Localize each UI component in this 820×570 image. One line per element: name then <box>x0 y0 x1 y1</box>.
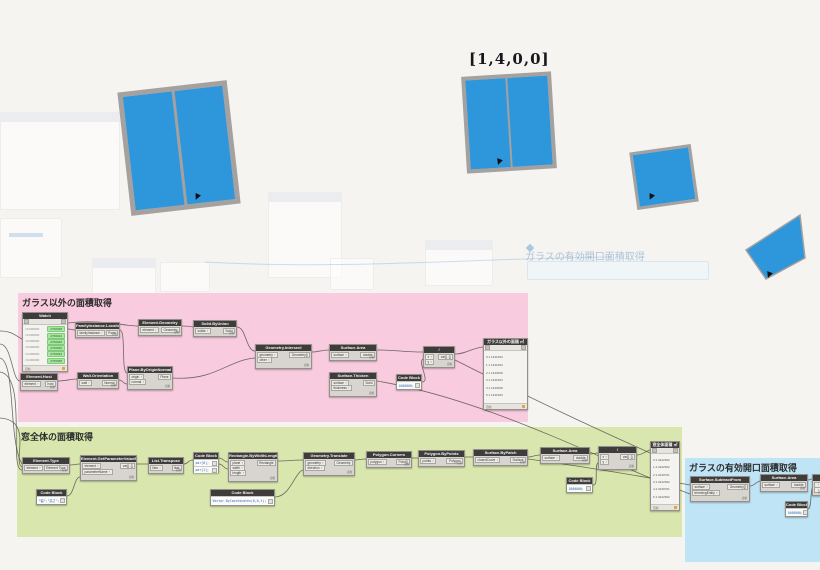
watch-item-label: =0.000000 <box>25 346 39 349</box>
code-line[interactable]: 1000000; <box>567 484 592 492</box>
watch-list-item: 3 4.3222392 <box>653 481 677 484</box>
lacing-label: 自動 <box>419 462 464 466</box>
lacing-label: 自動 <box>229 477 277 481</box>
lacing-label: 自動 <box>541 459 589 463</box>
node-code-block-params[interactable]: Code Block"幅";"高さ"; <box>36 489 67 505</box>
watch-list-item: =0.0000002766042 <box>25 333 65 339</box>
watch-list-item: 4 4.3230761 <box>653 488 677 491</box>
port-row: thickness <box>330 386 376 392</box>
watch-toolbar-button[interactable] <box>521 345 526 350</box>
node-geometry-translate[interactable]: Geometry.TranslategeometryGeometrydirect… <box>303 452 355 476</box>
port-row: trimmingEntity <box>691 490 749 496</box>
code-block-body[interactable]: Vector.ByCoordinates(0,0,t); <box>211 496 274 505</box>
watch-toolbar-button[interactable] <box>485 345 490 350</box>
node-list-transpose[interactable]: List.Transposelistslists自動 <box>148 457 184 474</box>
node-element-getparametervaluebyname[interactable]: Element.GetParameterValueByNameelementva… <box>80 455 137 481</box>
code-block-body[interactable]: par[0];par[1]; <box>194 459 218 472</box>
code-block-body[interactable]: 1000000; <box>786 508 807 516</box>
watch-list: =0.0000002766038=0.0000002766042=0.00000… <box>23 325 67 365</box>
watch-toolbar-button[interactable] <box>673 448 678 453</box>
node-element-geometry[interactable]: Element.GeometryelementGeometry自動 <box>138 319 182 336</box>
watch-list-item: 5 4.3222392 <box>653 496 677 499</box>
watch-list-item: 5 1.1331963 <box>486 394 525 397</box>
watch-list-item: 3 1.1331963 <box>486 379 525 382</box>
lacing-label: 自動 <box>367 463 411 467</box>
watch-list-item: =0.0000002766050 <box>25 345 65 351</box>
lacing-label: 自動 <box>128 385 172 389</box>
lacing-label: 自動 <box>330 392 376 396</box>
lacing-label: 自動 <box>23 469 69 473</box>
node-surface-area-1[interactable]: Surface.Areasurfacedouble自動 <box>329 344 377 361</box>
watch-list-item: =0.0000002766054 <box>25 351 65 357</box>
watch-toolbar-button[interactable] <box>24 319 29 324</box>
node-geometry-intersect[interactable]: Geometry.IntersectgeometryGeometry[]othe… <box>255 344 312 369</box>
preview-toggle-icon[interactable] <box>674 506 677 509</box>
lacing-label: 自動 <box>139 331 181 335</box>
watch-list-item: 0 1.1331963 <box>486 356 525 359</box>
lacing-label: 自動 <box>25 367 31 371</box>
element-id-badge[interactable]: 2766058 <box>47 358 65 364</box>
node-divide-1[interactable]: /xvar[]..[]y自動 <box>423 346 455 368</box>
element-id-badge[interactable]: 2766046 <box>47 339 65 345</box>
node-body <box>813 481 820 491</box>
input-port[interactable]: y <box>600 459 609 465</box>
output-port[interactable] <box>268 499 273 504</box>
code-line[interactable]: 1000000; <box>786 508 807 516</box>
node-polygon-bypoints[interactable]: Polygon.ByPointspointsPolygon自動 <box>418 450 465 467</box>
element-id-badge[interactable]: 2766054 <box>47 351 65 357</box>
node-watch-elements[interactable]: Watch=0.0000002766038=0.0000002766042=0.… <box>22 312 68 372</box>
port-row: length <box>229 471 277 476</box>
node-code-block-par[interactable]: Code Blockpar[0];par[1]; <box>193 452 219 473</box>
watch-item-label: =0.000000 <box>25 340 39 343</box>
output-port[interactable] <box>586 486 591 491</box>
code-block-body[interactable]: 1000000; <box>397 381 421 389</box>
lacing-label: 自動 <box>653 506 659 510</box>
input-port[interactable]: direction <box>305 465 325 471</box>
watch-list-item: 2 4.3230761 <box>653 474 677 477</box>
node-body: surfaceSolidthickness <box>330 379 376 392</box>
output-port[interactable] <box>60 498 65 503</box>
input-port[interactable]: thickness <box>331 385 352 391</box>
node-divide-2[interactable]: /xvar[]..[]y自動 <box>598 446 637 470</box>
node-solid-byunion[interactable]: Solid.ByUnionsolidsSolid自動 <box>193 320 237 337</box>
node-surface-area-2[interactable]: Surface.Areasurfacedouble自動 <box>540 447 590 464</box>
lacing-label: 自動 <box>81 476 136 480</box>
watch-list: 0 4.32223921 4.32223922 4.32307613 4.322… <box>651 454 679 504</box>
node-plane-byoriginnormal[interactable]: Plane.ByOriginNormaloriginPlanenormal自動 <box>127 366 173 390</box>
port-row: other <box>256 358 311 364</box>
node-body: xvar[]..[]y <box>424 353 454 363</box>
input-port[interactable]: length <box>230 470 246 476</box>
code-line[interactable]: Vector.ByCoordinates(0,0,t); <box>211 496 274 505</box>
lacing-label: 自動 <box>486 405 492 409</box>
port-row: y <box>599 459 636 464</box>
code-block-body[interactable]: "幅";"高さ"; <box>37 496 66 504</box>
input-port[interactable]: trimmingEntity <box>692 490 720 496</box>
port-row: parameterName <box>81 469 136 475</box>
watch-list-item: 0 4.3222392 <box>653 459 677 462</box>
lacing-label: 自動 <box>330 356 376 360</box>
node-element-type[interactable]: Element.TypeelementElement Type自動 <box>22 457 70 474</box>
port-row: direction <box>304 465 354 470</box>
element-id-badge[interactable]: 2766050 <box>47 345 65 351</box>
code-line[interactable]: "幅";"高さ"; <box>37 496 66 504</box>
watch-list-item: 4 1.1340258 <box>486 387 525 390</box>
lacing-label: 自動 <box>76 333 119 337</box>
node-wall-orientation[interactable]: Wall.OrientationwallNormal自動 <box>77 372 119 389</box>
lacing-label: 自動 <box>761 487 807 491</box>
element-id-badge[interactable]: 2766042 <box>47 333 65 339</box>
preview-toggle-icon[interactable] <box>522 405 525 408</box>
input-port[interactable]: parameterName <box>82 469 113 475</box>
watch-item-label: =0.000000 <box>25 328 39 331</box>
node-body: planeRectanglewidthlength <box>229 459 277 477</box>
watch-item-label: =0.000000 <box>25 353 39 356</box>
node-surface-thicken[interactable]: Surface.ThickensurfaceSolidthickness自動 <box>329 372 377 397</box>
lacing-label: 自動 <box>304 471 354 475</box>
node-surface-area-3[interactable]: Surface.Areasurfacedouble自動 <box>760 474 808 492</box>
output-port[interactable] <box>212 461 217 466</box>
watch-item-label: =0.000000 <box>25 359 39 362</box>
watch-footer: 自動 <box>484 403 527 409</box>
lacing-label: 自動 <box>78 384 118 388</box>
node-familyinstance-location[interactable]: FamilyInstance.LocationfamilyInstancePoi… <box>75 322 120 338</box>
lacing-label: 自動 <box>149 469 183 473</box>
lacing-label: 自動 <box>424 363 454 367</box>
node-element-host[interactable]: Element.Hostelementhost自動 <box>20 373 58 391</box>
node-watch-pink[interactable]: ガラス以外の面積 ㎡0 1.13319631 1.13319632 1.1340… <box>483 338 528 410</box>
element-id-badge[interactable]: 2766038 <box>47 326 65 332</box>
lacing-label: 自動 <box>474 461 527 465</box>
node-watch-green[interactable]: 窓全体面積 ㎡0 4.32223921 4.32223922 4.3230761… <box>650 441 680 511</box>
node-code-block-vector[interactable]: Code BlockVector.ByCoordinates(0,0,t); <box>210 489 275 506</box>
node-rectangle-bywidthlength[interactable]: Rectangle.ByWidthLengthplaneRectanglewid… <box>228 452 278 482</box>
watch-list-item: =0.0000002766058 <box>25 358 65 364</box>
node-body: elementvar[]..[]parameterName <box>81 462 136 476</box>
lacing-label: 自動 <box>194 332 236 336</box>
nodes-layer: Watch=0.0000002766038=0.0000002766042=0.… <box>0 0 820 570</box>
lacing-label: 自動 <box>813 491 820 495</box>
node-code-block-green[interactable]: Code Block1000000; <box>566 477 593 493</box>
input-port[interactable]: other <box>257 357 272 363</box>
watch-footer: 自動 <box>651 504 679 510</box>
node-body: geometryGeometry[]other <box>256 351 311 364</box>
code-block-body[interactable]: 1000000; <box>567 484 592 492</box>
node-body: originPlanenormal <box>128 373 172 385</box>
watch-toolbar-button[interactable] <box>61 319 66 324</box>
output-port[interactable] <box>415 383 420 388</box>
output-port[interactable] <box>803 510 807 515</box>
port-row: normal <box>128 379 172 384</box>
code-line[interactable]: par[1]; <box>194 466 218 473</box>
node-surface-subtractfrom[interactable]: Surface.SubtractFromsurfaceGeometry[]tri… <box>690 476 750 502</box>
node-body: surfaceGeometry[]trimmingEntity <box>691 483 749 497</box>
watch-list-item: =0.0000002766038 <box>25 326 65 332</box>
watch-item-label: =0.000000 <box>25 334 39 337</box>
watch-toolbar-button[interactable] <box>652 448 657 453</box>
lacing-label: 自動 <box>21 386 57 390</box>
node-cut-node[interactable]: 自動 <box>812 474 820 496</box>
output-port[interactable] <box>212 468 217 473</box>
node-surface-bypatch[interactable]: Surface.ByPatchclosedCurveSurface自動 <box>473 449 528 466</box>
lacing-label: 自動 <box>691 497 749 501</box>
watch-list-item: 1 1.1331963 <box>486 364 525 367</box>
watch-list-item: 2 1.1340258 <box>486 372 525 375</box>
dynamo-workspace[interactable]: ガラスの有効開口面積取得 [1,4,0,0] ガラス以外の面積取得 窓全体の面積… <box>0 0 820 570</box>
lacing-label: 自動 <box>599 465 636 469</box>
node-body: xvar[]..[]y <box>599 453 636 465</box>
code-line[interactable]: 1000000; <box>397 381 421 389</box>
lacing-label: 自動 <box>256 364 311 368</box>
preview-toggle-icon[interactable] <box>62 367 65 370</box>
code-line[interactable]: par[0]; <box>194 459 218 466</box>
watch-list-item: 1 4.3222392 <box>653 466 677 469</box>
watch-list-item: =0.0000002766046 <box>25 339 65 345</box>
watch-list: 0 1.13319631 1.13319632 1.13402583 1.133… <box>484 351 527 403</box>
node-code-block-pink[interactable]: Code Block1000000; <box>396 374 422 390</box>
input-port[interactable]: normal <box>129 379 146 385</box>
node-polygon-corners[interactable]: Polygon.CornerspolygonPoint[]自動 <box>366 451 412 468</box>
watch-footer: 自動 <box>23 365 67 371</box>
node-code-block-blue[interactable]: Code Block1000000; <box>785 501 808 517</box>
node-body: geometryGeometrydirection <box>304 459 354 471</box>
